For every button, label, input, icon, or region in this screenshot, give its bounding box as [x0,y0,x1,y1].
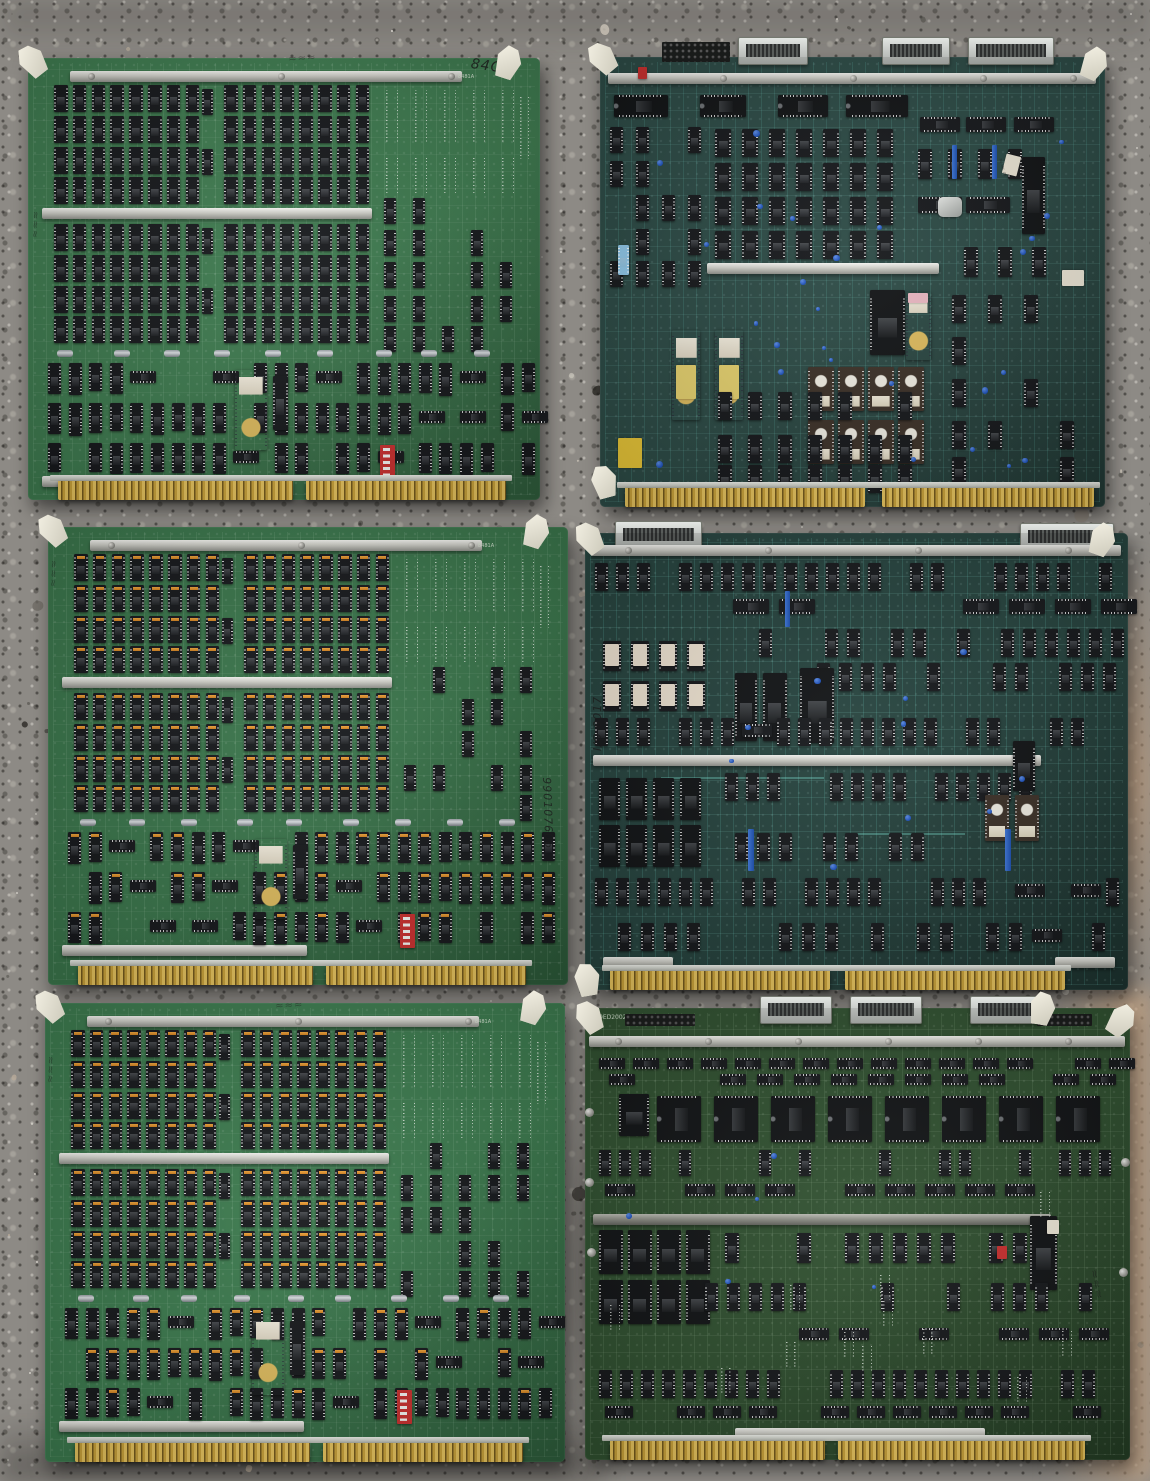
dip-chip [337,147,351,174]
dip-chip [599,1058,625,1069]
dip-chip [186,147,200,174]
dip-chip [956,773,969,801]
ribbon-header [850,996,922,1024]
light-blue-ic [618,245,629,275]
metal-rail [59,1153,389,1164]
dip-chip [746,773,759,801]
dip-chip [73,316,87,343]
dip-chip [898,392,912,420]
dip-chip [979,1074,1005,1085]
blue-capacitor [877,225,882,230]
dip-chip [677,1406,705,1418]
dip-chip [280,116,294,143]
dip-chip [243,116,257,143]
dip-chip [202,89,213,115]
dip-chip [501,403,514,431]
dip-chip [700,718,713,746]
dip-chip [889,833,902,861]
screw [108,542,115,549]
dip-chip [354,1030,368,1057]
dip-chip [203,1030,217,1057]
dip-chip [167,147,181,174]
dip-chip [109,1030,123,1057]
dip-chip [260,1092,274,1119]
capacitor [286,819,302,826]
dip-chip [149,554,163,581]
dip-chip [292,1388,305,1418]
dip-chip [89,872,102,904]
dip-chip [93,554,107,581]
dip-chip [850,163,866,191]
dip-chip [337,85,351,112]
dip-chip [110,286,124,313]
dip-chip [319,585,333,612]
dip-chip [74,646,88,673]
dip-chip [471,230,483,256]
capacitor [317,350,333,357]
dip-chip [398,363,411,393]
dip-chip [90,1030,104,1057]
dip-chip [338,785,352,812]
solder-pads [880,1272,890,1300]
dip-chip [206,585,220,612]
dip-chip [845,833,858,861]
ceramic-ic [255,839,287,919]
dip-chip [168,693,182,720]
dip-chip [413,296,425,322]
dip-chip [917,1233,931,1263]
blue-capacitor [970,447,975,452]
screw [885,1038,892,1045]
solder-pads [493,557,505,613]
dip-chip [90,1261,104,1288]
dip-chip [90,1231,104,1258]
dip-chip [337,116,351,143]
dip-chip [914,1370,927,1398]
dip-chip [616,878,629,906]
dip-chip [520,765,532,791]
capacitor [447,819,463,826]
dip-chip [206,785,220,812]
dip-chip [130,880,156,892]
dip-chip [1035,1283,1048,1311]
dip-chip [280,255,294,282]
dip-chip [850,129,866,157]
blue-capacitor [903,696,908,701]
dip-chip [680,825,701,867]
dip-chip [680,778,701,820]
dip-chip [931,878,944,906]
dip-chip [93,616,107,643]
dip-chip [838,435,852,463]
dip-chip [1082,1370,1095,1398]
dip-chip [93,724,107,751]
blue-capacitor [753,130,760,137]
dip-chip [318,286,332,313]
dip-chip [653,778,674,820]
capacitor [335,1295,351,1302]
dip-chip [769,231,785,259]
yellow-component [618,438,642,468]
dip-chip [626,778,647,820]
dip-chip [459,1207,471,1233]
pcb-board-bottom-left: 8481A≈≈≈≈≈≈ [45,1003,565,1462]
dip-chip [354,1231,368,1258]
dip-chip [150,832,163,861]
dip-chip [986,923,999,951]
dip-chip [637,718,650,746]
dip-chip [966,718,979,746]
dip-chip [595,718,608,746]
dip-chip [293,845,308,899]
screw [705,1038,712,1045]
dip-chip [636,195,649,221]
solder-pads [490,1033,502,1089]
standoff [1119,1268,1128,1277]
capacitor [57,350,73,357]
dip-chip [300,755,314,782]
dip-chip [282,755,296,782]
dip-chip [244,585,258,612]
dip-chip [442,326,454,352]
dip-chip [460,443,473,475]
dip-chip [337,286,351,313]
dip-chip [988,295,1002,323]
dip-chip [885,1184,915,1196]
dip-chip [224,85,238,112]
blue-capacitor [1001,370,1006,375]
solder-pads [519,1099,531,1139]
dip-chip [110,224,124,251]
dip-chip [241,1200,255,1227]
dip-chip [657,1280,681,1324]
dip-chip [151,443,164,472]
dip-chip [280,147,294,174]
dip-chip [202,228,213,254]
dip-chip [333,1396,359,1408]
dip-chip [130,693,144,720]
dip-chip [244,693,258,720]
dip-chip [129,116,143,143]
dip-chip [1024,379,1038,407]
dip-chip [184,1092,198,1119]
capacitor [181,819,197,826]
dip-chip [184,1169,198,1196]
dip-chip [998,247,1012,277]
solder-pads [406,623,418,663]
dip-chip [335,1092,349,1119]
dip-chip [1101,599,1137,614]
dip-chip [376,646,390,673]
pcb-board-top-right: ≈≈≈ [600,57,1105,507]
dip-chip [700,563,713,591]
dip-chip [90,1200,104,1227]
dip-chip [868,465,882,493]
dip-chip [336,880,362,892]
speck [801,526,803,528]
blue-capacitor [814,678,820,684]
dip-chip [488,1241,500,1267]
dip-chip [498,1388,511,1419]
dip-chip [146,1030,160,1057]
dip-chip [599,778,620,820]
dip-chip [1057,563,1070,591]
dip-chip [279,1200,293,1227]
dip-chip [1050,718,1063,746]
dip-chip [749,1406,777,1418]
dip-chip [263,616,277,643]
capacitor [214,350,230,357]
dip-chip [206,693,220,720]
dip-chip [471,262,483,288]
dip-chip [279,1061,293,1088]
dip-chip [796,163,812,191]
dip-chip [130,755,144,782]
dip-chip [825,629,838,657]
dip-chip [618,923,631,951]
dip-chip [110,116,124,143]
dip-chip [599,1370,612,1398]
dip-chip [319,755,333,782]
dip-chip [977,1370,990,1398]
dip-chip [186,316,200,343]
dip-chip [893,773,906,801]
dip-chip [769,197,785,225]
dip-chip [71,1092,85,1119]
metal-rail [42,208,372,219]
dip-chip [662,1370,675,1398]
dip-chip [230,1388,243,1416]
dip-chip [213,403,226,433]
dip-chip [89,443,102,472]
dip-chip [662,261,675,287]
dip-chip [89,912,102,944]
dip-chip [384,296,396,322]
dip-chip [279,1122,293,1149]
white-label [661,684,675,706]
dip-chip [879,1150,891,1176]
dip-chip [868,563,881,591]
dip-chip [297,1030,311,1057]
dip-chip [373,1231,387,1258]
dip-chip [54,224,68,251]
dip-chip [872,1370,885,1398]
dip-chip [1059,1150,1071,1176]
dip-chip [338,755,352,782]
solder-pads [386,154,398,194]
dip-chip [430,1207,442,1233]
dip-chip [439,832,452,862]
dip-chip [542,832,555,861]
edge-connector [306,481,506,500]
capacitor [343,819,359,826]
dip-chip [808,435,822,463]
dip-chip [413,262,425,288]
dip-chip [336,832,349,863]
dip-chip [462,731,474,757]
dip-chip [501,872,514,904]
dip-chip [130,403,143,433]
dip-chip [498,1308,511,1338]
blue-component [1005,829,1011,871]
dip-chip [92,224,106,251]
dip-chip [357,616,371,643]
dip-chip [1001,1406,1029,1418]
dip-chip [86,1388,99,1417]
dip-chip [713,1406,741,1418]
dip-chip [721,563,734,591]
dip-chip [356,177,370,204]
dip-chip [92,147,106,174]
eprom-chip [1015,795,1039,841]
dip-chip [109,840,135,852]
dip-chip [316,403,329,433]
edge-connector [326,966,526,985]
dip-chip [262,255,276,282]
dip-chip [1103,663,1116,691]
dip-chip [357,403,370,434]
dip-chip [491,699,503,725]
dip-chip [206,755,220,782]
dip-chip [335,1261,349,1288]
dip-chip [263,646,277,673]
edge-connector [838,1441,1085,1460]
dip-chip [778,95,828,117]
dip-chip [759,629,772,657]
dip-chip [282,646,296,673]
dip-chip [459,832,472,860]
dip-chip [148,147,162,174]
dip-chip [127,1169,141,1196]
solder-pads [519,1033,531,1089]
capacitor [443,1295,459,1302]
dip-chip [1090,1074,1116,1085]
dip-chip [280,316,294,343]
dip-chip [219,1233,230,1259]
dip-chip [110,147,124,174]
dip-chip [192,832,205,864]
dip-chip [952,379,966,407]
dip-chip [891,629,904,657]
dip-chip [1032,929,1062,942]
dip-chip [619,1150,631,1176]
dip-chip [599,1150,611,1176]
dip-chip [401,1271,413,1297]
dip-chip [73,85,87,112]
dip-chip [742,197,758,225]
dip-chip [129,147,143,174]
pin-header [662,42,730,62]
capacitor [164,350,180,357]
dip-chip [262,85,276,112]
dip-chip [501,363,514,395]
dip-chip [241,1092,255,1119]
dip-chip [224,224,238,251]
dip-chip [688,127,701,153]
pebble [853,1470,857,1473]
solder-pads [403,1033,415,1089]
dip-chip [999,1096,1043,1142]
blue-capacitor [987,809,992,814]
dip-chip [203,1231,217,1258]
dip-chip [823,129,839,157]
dip-chip [688,261,701,287]
dip-chip [300,693,314,720]
dip-chip [129,316,143,343]
dip-chip [769,163,785,191]
white-label [689,684,703,706]
blue-capacitor [911,457,916,462]
dip-chip [491,765,503,791]
dip-chip [491,667,503,693]
dip-chip [127,1061,141,1088]
dip-chip [54,316,68,343]
dip-chip [1007,1058,1033,1069]
dip-chip [771,1096,815,1142]
dip-chip [850,197,866,225]
dip-chip [337,255,351,282]
dip-chip [500,296,512,322]
dip-chip [260,1061,274,1088]
dip-chip [356,85,370,112]
dip-chip [224,255,238,282]
dip-chip [705,1283,718,1311]
dip-chip [357,785,371,812]
capacitor [181,1295,197,1302]
dip-chip [500,262,512,288]
dip-chip [93,693,107,720]
dip-chip [146,1122,160,1149]
dip-chip [1060,421,1074,449]
pcb-board-top-left: 8481A84C≈≈≈≈≈≈ [28,58,540,500]
dip-chip [312,1308,325,1336]
dip-chip [456,1388,469,1419]
dip-chip [415,1348,428,1380]
dip-chip [318,255,332,282]
dip-chip [679,878,692,906]
dip-chip [401,1207,413,1233]
dip-chip [202,288,213,314]
dip-chip [418,912,431,941]
dip-chip [93,755,107,782]
blue-capacitor [755,1197,759,1201]
dip-chip [189,1388,202,1420]
dip-chip [959,1150,971,1176]
dip-chip [260,1169,274,1196]
dip-chip [522,411,548,423]
white-label [689,644,703,666]
dip-chip [335,1030,349,1057]
dip-chip [263,554,277,581]
solder-pads [432,1099,444,1139]
edge-connector [75,1443,310,1462]
metal-rail [62,945,307,956]
dip-chip [69,363,82,395]
dip-chip [209,1308,222,1340]
dip-chip [65,1388,78,1419]
capacitor [499,819,515,826]
dip-chip [845,1233,859,1263]
dip-chip [356,224,370,251]
screw [105,1018,112,1025]
dip-chip [973,1058,999,1069]
dip-chip [167,177,181,204]
dip-chip [165,1092,179,1119]
dip-chip [771,1283,784,1311]
dip-chip [871,1058,897,1069]
dip-chip [641,1370,654,1398]
dip-chip [168,755,182,782]
